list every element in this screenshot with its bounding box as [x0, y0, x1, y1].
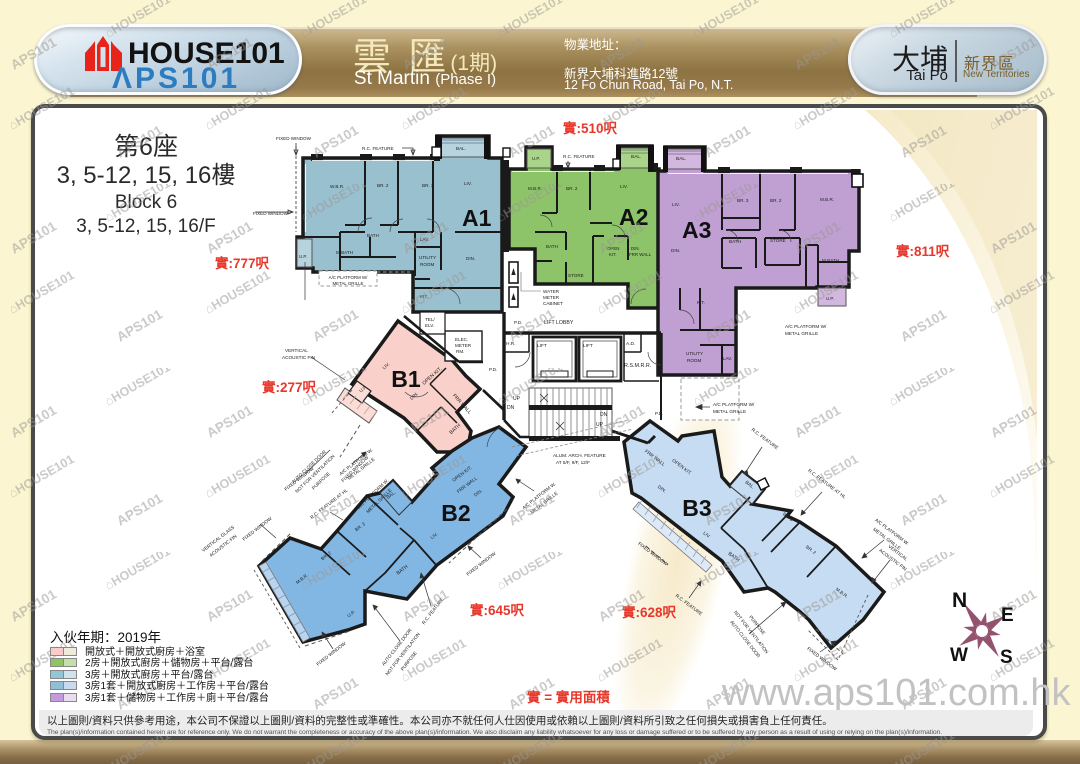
- svg-text:B3: B3: [682, 495, 711, 521]
- svg-text:U.P.: U.P.: [299, 254, 307, 259]
- svg-text:STORE: STORE: [568, 273, 584, 278]
- svg-text:A/C PLATFORM W/: A/C PLATFORM W/: [785, 324, 827, 329]
- svg-text:FIXED WINDOW: FIXED WINDOW: [806, 646, 838, 672]
- svg-text:P.D.: P.D.: [514, 320, 522, 325]
- svg-text:FIXED WINDOW: FIXED WINDOW: [465, 551, 497, 577]
- svg-text:LAV.: LAV.: [723, 356, 732, 361]
- svg-text:E: E: [1001, 605, 1014, 626]
- svg-text:KIT.: KIT.: [609, 252, 617, 257]
- svg-text:BATH: BATH: [729, 239, 741, 244]
- svg-text:FIXED WINDOW: FIXED WINDOW: [241, 516, 273, 542]
- svg-text:ELEC.: ELEC.: [455, 337, 468, 342]
- svg-text:LIV.: LIV.: [620, 184, 628, 189]
- svg-text:M.BATH: M.BATH: [822, 258, 839, 263]
- svg-text:BATH: BATH: [546, 244, 558, 249]
- svg-text:實:277呎: 實:277呎: [262, 379, 317, 395]
- svg-text:A3: A3: [682, 217, 711, 243]
- svg-text:H.R.: H.R.: [506, 341, 516, 347]
- svg-text:A1: A1: [462, 205, 492, 231]
- svg-text:R.C. FEATURE: R.C. FEATURE: [421, 597, 445, 625]
- svg-text:DIN.: DIN.: [631, 246, 640, 251]
- svg-text:實:811呎: 實:811呎: [896, 243, 950, 259]
- svg-text:ROOM: ROOM: [420, 262, 434, 267]
- svg-text:ALUM. ARCH. FEATURE: ALUM. ARCH. FEATURE: [553, 453, 606, 458]
- svg-text:P.D.: P.D.: [489, 367, 497, 372]
- svg-text:M.BATH: M.BATH: [336, 250, 353, 255]
- svg-text:實:645呎: 實:645呎: [470, 602, 525, 618]
- svg-text:R.S.M.R.R.: R.S.M.R.R.: [624, 363, 651, 369]
- svg-text:R.C. FEATURE: R.C. FEATURE: [675, 593, 704, 616]
- svg-text:U.P.: U.P.: [826, 296, 834, 301]
- svg-text:BAL.: BAL.: [676, 156, 686, 162]
- svg-text:RM.: RM.: [456, 349, 464, 354]
- svg-text:實:628呎: 實:628呎: [622, 604, 677, 620]
- svg-text:ROOM: ROOM: [687, 358, 701, 363]
- svg-text:LIV.: LIV.: [672, 202, 680, 207]
- svg-text:UTILITY: UTILITY: [419, 255, 436, 260]
- svg-text:METER: METER: [543, 295, 560, 300]
- svg-text:UP: UP: [513, 396, 521, 402]
- svg-text:LIFT LOBBY: LIFT LOBBY: [544, 320, 574, 326]
- svg-text:VERTICAL: VERTICAL: [285, 348, 308, 353]
- svg-text:LIFT: LIFT: [583, 343, 593, 349]
- svg-text:R.C. FEATURE: R.C. FEATURE: [751, 427, 780, 450]
- svg-text:B2: B2: [441, 500, 470, 526]
- svg-text:A/C PLATFORM W/: A/C PLATFORM W/: [713, 402, 755, 407]
- svg-text:P.D.: P.D.: [655, 411, 663, 416]
- svg-text:DN: DN: [600, 412, 608, 418]
- svg-text:R.C. FEATURE AT HL: R.C. FEATURE AT HL: [807, 468, 847, 500]
- svg-text:R.C. FEATURE: R.C. FEATURE: [362, 146, 394, 151]
- svg-text:FIXED WINDOW: FIXED WINDOW: [315, 641, 347, 667]
- svg-text:BR. 3: BR. 3: [422, 183, 434, 188]
- svg-text:BAL.: BAL.: [631, 154, 641, 160]
- svg-text:WATER: WATER: [543, 289, 560, 294]
- svg-text:LAV.: LAV.: [420, 237, 429, 242]
- svg-text:BR. 3: BR. 3: [737, 198, 749, 203]
- svg-text:實:777呎: 實:777呎: [215, 255, 270, 271]
- svg-text:METER: METER: [455, 343, 472, 348]
- svg-text:LIFT: LIFT: [537, 343, 547, 349]
- svg-text:DIN.: DIN.: [671, 248, 680, 253]
- svg-text:ACOUSTIC FIN: ACOUSTIC FIN: [282, 355, 315, 360]
- svg-text:W.B.R.: W.B.R.: [330, 184, 344, 189]
- svg-text:BAL.: BAL.: [456, 146, 466, 151]
- svg-text:UTILITY: UTILITY: [686, 351, 703, 356]
- svg-text:S: S: [1000, 647, 1013, 668]
- svg-text:BR. 2: BR. 2: [566, 186, 578, 191]
- svg-text:R.C. FEATURE AT HL: R.C. FEATURE AT HL: [309, 487, 349, 520]
- svg-text:DIN.: DIN.: [466, 256, 475, 261]
- svg-text:實:510呎: 實:510呎: [563, 120, 618, 136]
- svg-text:AT 5/F, 9/F, 12/F: AT 5/F, 9/F, 12/F: [556, 460, 590, 465]
- svg-text:R.C. FEATURE: R.C. FEATURE: [563, 154, 595, 159]
- svg-text:CABINET: CABINET: [543, 301, 563, 306]
- svg-text:M.B.R.: M.B.R.: [528, 186, 542, 191]
- svg-text:FIXED WINDOW: FIXED WINDOW: [637, 541, 669, 567]
- svg-text:METAL GRILLE: METAL GRILLE: [713, 409, 746, 414]
- svg-text:ELV.: ELV.: [425, 323, 434, 328]
- svg-text:DN: DN: [507, 405, 515, 411]
- svg-text:N: N: [952, 589, 967, 612]
- svg-text:TEL/: TEL/: [425, 317, 435, 322]
- svg-text:OPEN: OPEN: [607, 246, 619, 251]
- svg-text:STORE: STORE: [770, 238, 786, 243]
- svg-text:METAL GRILLE: METAL GRILLE: [333, 281, 364, 286]
- svg-text:A.D.: A.D.: [626, 341, 635, 347]
- svg-text:LIV.: LIV.: [464, 181, 472, 186]
- svg-text:KIT.: KIT.: [697, 300, 705, 305]
- svg-text:A/C PLATFORM W/: A/C PLATFORM W/: [329, 275, 368, 280]
- svg-text:FIXED WINDOW: FIXED WINDOW: [276, 136, 312, 141]
- svg-text:M.B.R.: M.B.R.: [820, 197, 834, 202]
- svg-text:U.P.: U.P.: [532, 156, 540, 161]
- svg-text:A2: A2: [619, 204, 648, 230]
- svg-text:BR. 2: BR. 2: [377, 183, 389, 188]
- svg-text:KIT.: KIT.: [420, 294, 428, 299]
- svg-text:W: W: [950, 645, 968, 666]
- svg-text:FRR WALL: FRR WALL: [629, 252, 652, 257]
- svg-text:BR. 2: BR. 2: [770, 198, 782, 203]
- svg-text:BATH: BATH: [367, 233, 379, 238]
- svg-text:B1: B1: [391, 366, 421, 392]
- svg-text:METAL GRILLE: METAL GRILLE: [785, 331, 818, 336]
